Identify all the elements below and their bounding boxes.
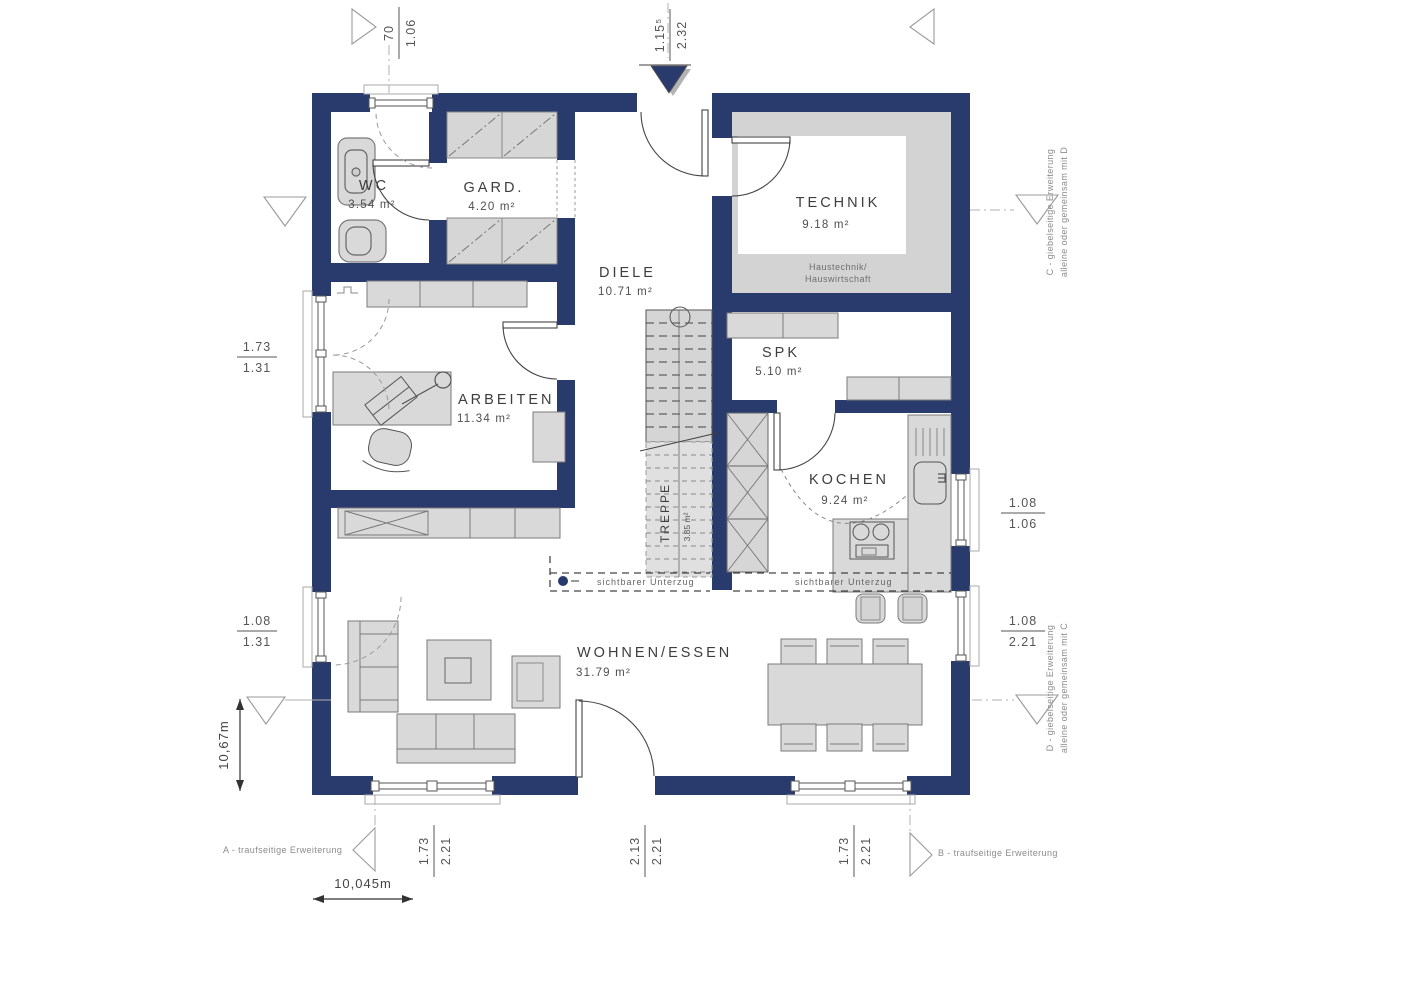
dim-right-lower-den: 2.21 <box>1009 635 1037 649</box>
beam-label-left: sichtbarer Unterzug <box>597 577 695 587</box>
marker-left-low <box>247 697 285 724</box>
extension-b-label: B - traufseitige Erweiterung <box>938 848 1058 858</box>
kitchen-sink <box>914 462 946 504</box>
sofa-horizontal <box>397 714 515 763</box>
total-height-label: 10,67m <box>216 720 231 769</box>
wall-wc-bottom <box>331 263 575 282</box>
dim-left-upper-num: 1.73 <box>243 340 271 354</box>
dim-right-upper-num: 1.08 <box>1009 496 1037 510</box>
wc-name: WC <box>359 178 389 194</box>
arbeiten-door-leaf <box>503 322 557 328</box>
dim-bottom-right-num: 1.73 <box>837 837 851 865</box>
sideboard <box>338 508 560 538</box>
beam-label-right: sichtbarer Unterzug <box>795 577 893 587</box>
dim-top-center-den: 2.32 <box>675 21 689 49</box>
dim-top-left: 70 1.06 <box>382 7 418 59</box>
dim-top-left-den: 1.06 <box>404 19 418 47</box>
window-arbeiten-left <box>303 291 331 417</box>
stairs <box>640 307 717 577</box>
treppe-area: 3.85 m² <box>682 512 692 541</box>
opening-entrance <box>637 93 712 112</box>
gard-name: GARD. <box>464 180 525 196</box>
entrance-door-leaf <box>702 110 708 176</box>
technik-area: 9.18 m² <box>802 219 849 231</box>
entrance-marker <box>639 65 691 96</box>
diele-area: 10.71 m² <box>598 286 653 298</box>
floor-plan-page: sichtbarer Unterzug sichtbarer Unterzug … <box>0 0 1414 1000</box>
wall-right <box>951 93 970 795</box>
wc-area: 3.54 m² <box>348 199 395 211</box>
desk-chair <box>366 426 414 468</box>
dim-left-lower-num: 1.08 <box>243 614 271 628</box>
chair <box>781 639 816 666</box>
marker-top-right <box>910 9 934 44</box>
opening-arbeiten-door <box>557 325 575 380</box>
window-bottom-a <box>365 776 500 804</box>
dim-top-center-num: 1.15⁵ <box>653 18 667 53</box>
dim-bottom-left-num: 1.73 <box>417 837 431 865</box>
dim-left-upper: 1.73 1.31 <box>237 340 277 375</box>
marker-ext-b <box>910 833 932 876</box>
total-width-label: 10,045m <box>334 876 392 891</box>
opening-technik-door <box>712 138 732 196</box>
wall-left <box>312 93 331 795</box>
extension-d-line2: alleine oder gemeinsam mit C <box>1059 623 1069 753</box>
dim-bottom-left-den: 2.21 <box>439 837 453 865</box>
wall-spk-kochen-left <box>712 400 777 413</box>
spk-door-leaf <box>774 413 780 470</box>
dim-right-lower-num: 1.08 <box>1009 614 1037 628</box>
dim-bottom-right: 1.73 2.21 <box>837 825 873 877</box>
marker-left-mid <box>264 197 306 226</box>
dim-bottom-center: 2.13 2.21 <box>628 825 664 877</box>
extension-c-label: C - giebelseitige Erweiterung alleine od… <box>1045 147 1069 277</box>
marker-top-left <box>352 9 376 44</box>
dim-left-lower: 1.08 1.31 <box>237 614 277 649</box>
wohnen-name: WOHNEN/ESSEN <box>577 645 732 661</box>
wall-spk-kochen-right <box>835 400 951 413</box>
dim-right-lower: 1.08 2.21 <box>1001 614 1045 649</box>
chair <box>827 639 862 666</box>
kochen-name: KOCHEN <box>809 472 889 488</box>
diele-name: DIELE <box>599 265 656 281</box>
spk-name: SPK <box>762 345 800 361</box>
dim-total-height: 10,67m <box>216 699 244 791</box>
dim-bottom-left: 1.73 2.21 <box>417 825 453 877</box>
wohnen-area: 31.79 m² <box>576 667 631 679</box>
cabinet <box>533 412 565 462</box>
terrace-door-leaf <box>576 700 582 777</box>
technik-note-2: Hauswirtschaft <box>805 274 871 284</box>
extension-c-line1: C - giebelseitige Erweiterung <box>1045 149 1055 276</box>
marker-ext-a <box>353 828 375 871</box>
opening-gard-diele <box>557 160 575 218</box>
arbeiten-area: 11.34 m² <box>457 413 511 425</box>
treppe-name: TREPPE <box>658 483 672 543</box>
dim-total-width: 10,045m <box>313 876 413 903</box>
bar-stools <box>856 594 927 623</box>
dim-bottom-right-den: 2.21 <box>859 837 873 865</box>
dining-table <box>768 664 922 725</box>
window-wc-top <box>364 85 438 112</box>
radiator-mark <box>337 287 358 293</box>
room-arbeiten-furniture <box>333 281 565 475</box>
arbeiten-name: ARBEITEN <box>458 392 555 408</box>
chair <box>873 639 908 666</box>
wall-arbeiten-wohnen <box>312 490 575 508</box>
window-wohnen-left <box>303 587 331 667</box>
wall-technik-spk <box>712 293 970 312</box>
dining-set <box>768 639 922 751</box>
dim-right-upper-den: 1.06 <box>1009 517 1037 531</box>
dim-top-center: 1.15⁵ 2.32 <box>653 9 689 61</box>
wall-arbeiten-diele <box>557 282 575 508</box>
kochen-area: 9.24 m² <box>821 495 868 507</box>
dim-top-left-num: 70 <box>382 25 396 41</box>
window-bottom-b <box>787 776 915 804</box>
dim-left-upper-den: 1.31 <box>243 361 271 375</box>
technik-door-leaf <box>732 137 790 143</box>
dim-bottom-center-num: 2.13 <box>628 837 642 865</box>
extension-c-line2: alleine oder gemeinsam mit D <box>1059 147 1069 277</box>
extension-d-label: D - giebelseitige Erweiterung alleine od… <box>1045 623 1069 753</box>
dim-right-upper: 1.08 1.06 <box>1001 496 1045 531</box>
wc-door-leaf <box>373 160 429 166</box>
window-essen-right <box>951 586 979 666</box>
extension-a-label: A - traufseitige Erweiterung <box>223 845 342 855</box>
dim-bottom-center-den: 2.21 <box>650 837 664 865</box>
chair <box>873 724 908 751</box>
chair <box>781 724 816 751</box>
living-group <box>348 621 560 763</box>
extension-d-line1: D - giebelseitige Erweiterung <box>1045 625 1055 752</box>
dim-left-lower-den: 1.31 <box>243 635 271 649</box>
shelf <box>367 281 527 307</box>
window-kochen-right <box>951 469 979 551</box>
technik-name: TECHNIK <box>796 195 881 211</box>
chair <box>827 724 862 751</box>
technik-note-1: Haustechnik/ <box>809 262 867 272</box>
floor-plan-svg: sichtbarer Unterzug sichtbarer Unterzug … <box>0 0 1414 1000</box>
spk-area: 5.10 m² <box>755 366 802 378</box>
opening-wc-door <box>429 163 447 220</box>
beam-dot <box>558 576 568 586</box>
gard-area: 4.20 m² <box>468 201 515 213</box>
opening-terrace-door <box>578 776 655 795</box>
room-spk-shelves <box>727 313 951 400</box>
